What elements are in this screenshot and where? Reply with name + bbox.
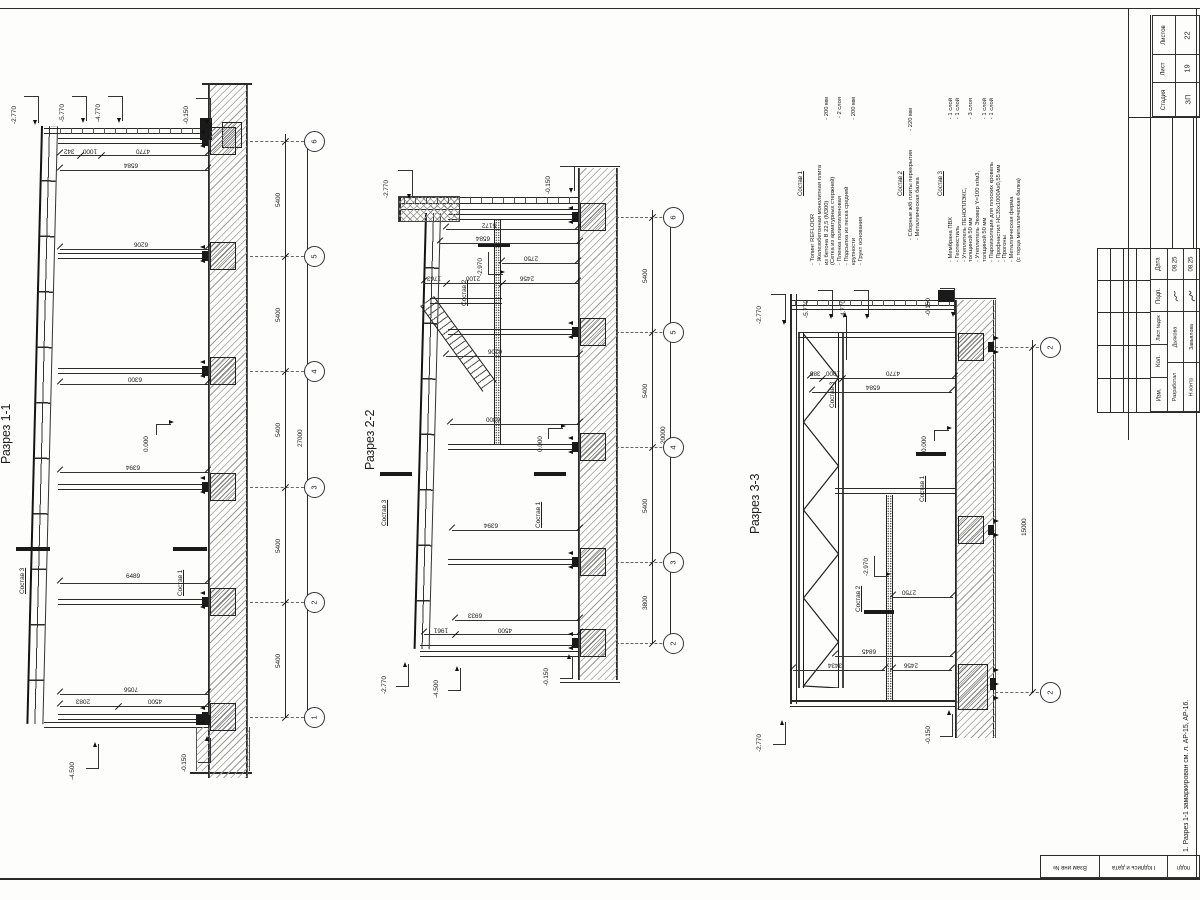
- arrow-mark: [994, 668, 1001, 672]
- stamp-stage-value: ЗП: [1183, 95, 1192, 105]
- dimension-text: 0.000: [538, 436, 545, 452]
- hatch-region: [580, 318, 606, 346]
- solid-element: [534, 472, 566, 476]
- arrow-mark: [566, 321, 573, 325]
- dimension-text: 15000: [1022, 518, 1029, 536]
- line: [1097, 248, 1200, 249]
- dimension-text: 6394: [126, 463, 140, 470]
- line: [0, 878, 1200, 880]
- composition-text: крупности: [851, 238, 858, 265]
- dimension-text: 2750: [524, 254, 538, 261]
- dimension-text: -5.770: [60, 104, 67, 122]
- composition-ref-label: Состав 2: [462, 280, 469, 306]
- elevation-leader: [771, 294, 786, 323]
- dimension-text: 20000: [661, 426, 668, 444]
- dimension-text: -0.150: [182, 754, 189, 772]
- hatch-region: [404, 197, 574, 203]
- arrow-mark: [566, 220, 573, 224]
- composition-line: - Подсыпка из песка средней: [844, 97, 851, 265]
- side-cell-podpis: Подпись и дата: [1099, 855, 1168, 878]
- elevation-leader: [86, 744, 99, 769]
- arrow-mark: [500, 270, 507, 274]
- stamp-row1-name-cell: Дьякова: [1167, 311, 1184, 363]
- composition-ref-label: Состав 3: [830, 382, 837, 408]
- arrow-mark: [198, 591, 205, 595]
- grid-bubble-label: 6: [310, 139, 319, 143]
- dimension-text: -2.970: [864, 558, 871, 576]
- line: [1150, 15, 1151, 248]
- dimension-text: 1961: [434, 626, 448, 633]
- grid-bubble-label: 1: [310, 715, 319, 719]
- dimension-text: 2750: [902, 588, 916, 595]
- arrow-mark: [994, 533, 1001, 537]
- dimension-text: 6845: [862, 647, 876, 654]
- stamp-row1-role-cell: Разработал: [1167, 362, 1184, 412]
- arrow-mark: [198, 360, 205, 364]
- stamp-row2-date-cell: 08.25: [1183, 248, 1200, 280]
- dimension-text: 3434: [828, 661, 842, 668]
- arrow-mark: [567, 652, 571, 659]
- dimension-line: [446, 229, 578, 230]
- dimension-text: 1000: [83, 147, 97, 154]
- arrow-mark: [566, 335, 573, 339]
- grid-bubble: 4: [304, 361, 325, 382]
- arrow-mark: [782, 320, 786, 327]
- composition-value: - 200 мм: [851, 97, 858, 120]
- grid-bubble: 2: [1040, 337, 1061, 358]
- line: [1040, 855, 1200, 856]
- hatch-region: [579, 168, 618, 680]
- line: [1128, 117, 1200, 118]
- stamp-rev-qty-cell: Кол.: [1150, 344, 1168, 378]
- line: [1196, 8, 1197, 878]
- dimension-text: -2.770: [384, 180, 391, 198]
- line: [835, 493, 955, 494]
- dimension-text: -4.770: [96, 104, 103, 122]
- composition-line: - Пароизоляция для плоских кровель- 1 сл…: [989, 98, 996, 262]
- dimension-text: -0.150: [926, 298, 933, 316]
- composition-line: - Металлическая балка: [915, 108, 922, 240]
- composition-value: - 2 слоя: [837, 97, 844, 118]
- stamp-sheet-label-cell: Лист: [1152, 54, 1176, 83]
- grid-bubble-label: 6: [669, 215, 678, 219]
- composition-value: - 1 слой: [989, 98, 996, 119]
- stamp-sheets-label: Листов: [1161, 25, 1167, 45]
- grid-bubble: 5: [304, 246, 325, 267]
- dimension-line: [60, 583, 208, 584]
- arrow-mark: [994, 519, 1001, 523]
- composition-line: - Пленка полиэтиленовая- 2 слоя: [837, 97, 844, 265]
- line: [58, 484, 208, 485]
- line: [58, 143, 208, 144]
- arrow-mark: [198, 374, 205, 378]
- line: [58, 373, 208, 374]
- grid-bubble: 2: [1040, 682, 1061, 703]
- arrow-mark: [407, 194, 411, 201]
- line: [420, 645, 580, 646]
- composition-value: - 1 слой: [982, 98, 989, 119]
- dimension-line: [835, 656, 953, 657]
- dimension-text: -4.770: [841, 300, 848, 318]
- composition-line: - Геотекстиль- 1 слой: [955, 98, 962, 262]
- line: [285, 134, 286, 718]
- composition-text: - Утеплитель Эковер Y=100 кг/м3,: [975, 171, 982, 262]
- arrow-mark: [569, 188, 573, 195]
- elevation-leader: [773, 722, 786, 745]
- line: [1193, 117, 1194, 248]
- arrow-mark: [566, 632, 573, 636]
- dimension-text: -4.500: [70, 762, 77, 780]
- solid-element: [380, 472, 412, 476]
- composition-text: - Геотекстиль: [955, 226, 962, 262]
- dimension-text: 5400: [643, 499, 650, 513]
- stamp-row1-name: Дьякова: [1173, 327, 1179, 348]
- arrow-mark: [994, 682, 1001, 686]
- composition-ref-label: Состав 1: [920, 476, 927, 502]
- composition-text: - Сборные ж/б плиты перекрытия: [908, 150, 915, 240]
- arrow-mark: [566, 450, 573, 454]
- hatch-region: [580, 548, 606, 576]
- dimension-text: 5400: [276, 308, 283, 322]
- dimension-line: [60, 249, 208, 250]
- stamp-rev-date-cell: Дата: [1150, 248, 1168, 280]
- arrow-mark: [780, 718, 784, 725]
- line: [798, 337, 957, 338]
- dimension-line: [810, 378, 955, 379]
- dimension-text: 0.000: [922, 436, 929, 452]
- line: [58, 258, 208, 259]
- side-cell-podpis-label: Подпись и дата: [1112, 864, 1155, 870]
- dimension-line: [60, 384, 208, 385]
- dimension-text: -0.150: [926, 726, 933, 744]
- dimension-text: 4770: [886, 369, 900, 376]
- grid-bubble-label: 4: [669, 445, 678, 449]
- solid-element: [864, 610, 894, 614]
- elevation-leader: [156, 424, 171, 435]
- hatch-region: [886, 495, 893, 702]
- line: [58, 604, 208, 605]
- line: [790, 706, 957, 707]
- dimension-line: [893, 597, 953, 598]
- grid-bubble: 5: [663, 322, 684, 343]
- stamp-row2-sig-cell: [1183, 279, 1200, 312]
- line: [58, 368, 208, 369]
- hatch-region: [210, 357, 236, 385]
- elevation-leader: [198, 738, 211, 763]
- hatch-region: [210, 588, 236, 616]
- composition-ref-label: Состав 1: [536, 502, 543, 528]
- elevation-leader: [818, 290, 833, 317]
- arrow-mark: [994, 336, 1001, 340]
- line: [58, 253, 208, 254]
- dimension-text: 6933: [468, 611, 482, 618]
- line: [448, 559, 578, 560]
- composition-value: - 1 слой: [955, 98, 962, 119]
- composition-header: Состав 3: [938, 171, 944, 196]
- arrow-mark: [33, 120, 37, 127]
- side-cell-podl-label: подп: [1177, 864, 1190, 870]
- line: [420, 656, 580, 657]
- line: [448, 219, 578, 220]
- dimension-text: 342: [64, 147, 75, 154]
- line: [58, 489, 208, 490]
- dimension-text: 3800: [643, 596, 650, 610]
- arrow-mark: [566, 206, 573, 210]
- grid-bubble: 3: [304, 477, 325, 498]
- stamp-rev-chg: Изм.: [1156, 388, 1162, 401]
- elevation-leader: [560, 656, 573, 679]
- line: [448, 444, 578, 445]
- grid-axis-line: [250, 256, 304, 257]
- elevation-leader: [940, 714, 953, 737]
- stamp-row1-date-cell: 08.25: [1167, 248, 1184, 280]
- arrow-mark: [947, 708, 951, 715]
- composition-ref-label: Состав 3: [382, 500, 389, 526]
- dimension-text: 5400: [643, 269, 650, 283]
- arrow-mark: [994, 350, 1001, 354]
- composition-text: - Металлическая ферма: [1009, 197, 1016, 263]
- line: [1128, 8, 1129, 440]
- dimension-text: 27000: [298, 429, 305, 447]
- composition-line: - Топинг REFLOOR: [810, 97, 817, 265]
- stamp-row2-name: Завьялова: [1189, 324, 1195, 350]
- composition-text: (с торца металлическая балка): [1016, 178, 1023, 262]
- dimension-text: -2.770: [757, 734, 764, 752]
- arrow-mark: [205, 734, 209, 741]
- elevation-leader: [548, 428, 563, 439]
- dimension-text: 5400: [276, 423, 283, 437]
- arrow-mark: [198, 476, 205, 480]
- dimension-line: [60, 170, 208, 171]
- hatch-region: [958, 516, 984, 544]
- composition-line: - Металлическая ферма: [1009, 98, 1016, 262]
- dimension-line: [793, 670, 885, 671]
- arrow-mark: [566, 436, 573, 440]
- composition-header: Состав 2: [898, 171, 904, 196]
- composition-ref-label: Состав 3: [20, 568, 27, 594]
- grid-bubble: 1: [304, 707, 325, 728]
- dimension-text: 5172: [482, 221, 496, 228]
- line: [44, 722, 208, 723]
- arrow-mark: [117, 118, 121, 125]
- line: [790, 700, 957, 702]
- stamp-row2-role-cell: Н.контр: [1183, 362, 1200, 412]
- stamp-rev-sign: Подп.: [1156, 288, 1162, 304]
- dimension-line: [60, 472, 208, 473]
- composition-text: - Мембрана ПВХ: [948, 217, 955, 262]
- elevation-leader: [854, 290, 869, 317]
- side-cell-vzam: Взам инв №: [1040, 855, 1100, 878]
- grid-bubble-label: 2: [310, 600, 319, 604]
- grid-bubble: 2: [304, 592, 325, 613]
- stamp-rev-date: Дата: [1156, 257, 1162, 270]
- grid-axis-line: [250, 717, 304, 718]
- sheet-note: 1. Разрез 1-1 замаркирован см. л. АР-15,…: [1183, 700, 1190, 852]
- dimension-line: [60, 155, 208, 156]
- stamp-sheets-label-cell: Листов: [1152, 15, 1176, 55]
- arrow-mark: [561, 424, 568, 428]
- line: [790, 294, 792, 704]
- arrow-mark: [198, 245, 205, 249]
- line: [1110, 248, 1111, 412]
- grid-bubble-label: 3: [310, 485, 319, 489]
- elevation-leader: [448, 668, 461, 691]
- dimension-text: 6584: [476, 234, 490, 241]
- stamp-stage-label: Стадия: [1161, 89, 1167, 109]
- line: [1032, 340, 1033, 692]
- line: [798, 332, 957, 333]
- stamp-row1-role: Разработал: [1173, 373, 1179, 401]
- dimension-text: 4770: [136, 147, 150, 154]
- dimension-text: 7056: [124, 685, 138, 692]
- hatch-region: [210, 703, 236, 731]
- arrow-mark: [403, 660, 407, 667]
- line: [44, 727, 208, 728]
- stamp-sheet-value: 19: [1183, 64, 1192, 72]
- hatch-region: [60, 128, 206, 134]
- arrow-mark: [169, 420, 176, 424]
- line: [58, 138, 208, 139]
- section-2-2: [360, 160, 700, 700]
- solid-element: [173, 547, 207, 551]
- arrow-mark: [566, 551, 573, 555]
- grid-axis-line: [250, 141, 304, 142]
- dimension-line: [60, 706, 208, 707]
- stamp-sheet-label: Лист: [1161, 62, 1167, 75]
- line: [420, 651, 580, 652]
- signature-icon: [1172, 290, 1180, 302]
- arrow-mark: [994, 696, 1001, 700]
- composition-text: - Металлическая балка: [915, 177, 922, 240]
- stamp-rev-chg-cell: Изм.: [1150, 377, 1168, 412]
- section-title: Разрез 2-2: [364, 410, 377, 470]
- line: [652, 210, 653, 644]
- arrow-mark: [205, 120, 209, 127]
- dimension-text: 2083: [76, 697, 90, 704]
- grid-axis-line: [250, 602, 304, 603]
- arrow-mark: [829, 314, 833, 321]
- stamp-sheets-value: 22: [1183, 31, 1192, 39]
- arrow-mark: [198, 259, 205, 263]
- hatch-region: [210, 127, 236, 155]
- dimension-text: 4500: [498, 626, 512, 633]
- elevation-leader: [934, 430, 949, 441]
- grid-bubble-label: 2: [669, 641, 678, 645]
- dimension-text: 2456: [520, 274, 534, 281]
- line: [1040, 855, 1041, 878]
- dimension-text: -4.500: [434, 680, 441, 698]
- dimension-text: 2456: [904, 661, 918, 668]
- elevation-leader: [940, 288, 955, 315]
- composition-text: - Топинг REFLOOR: [810, 214, 817, 265]
- arrow-mark: [455, 664, 459, 671]
- dimension-line: [455, 620, 580, 621]
- dimension-text: -0.150: [184, 106, 191, 124]
- line: [1097, 412, 1200, 413]
- dimension-text: 6489: [126, 574, 140, 581]
- grid-bubble-label: 2: [1046, 345, 1055, 349]
- dimension-text: 5400: [643, 384, 650, 398]
- solid-element: [16, 547, 50, 551]
- line: [0, 8, 1200, 9]
- stamp-row2-date: 08.25: [1189, 256, 1195, 271]
- hatch-region: [209, 85, 248, 778]
- arrow-mark: [93, 740, 97, 747]
- truss: [798, 332, 844, 688]
- arrow-mark: [198, 605, 205, 609]
- grid-bubble-label: 3: [669, 560, 678, 564]
- composition-line: - Сборные ж/б плиты перекрытия- 220 мм: [908, 108, 915, 240]
- line: [670, 210, 671, 644]
- line: [58, 719, 208, 720]
- line: [58, 599, 208, 600]
- dimension-text: -2.770: [382, 676, 389, 694]
- composition-text: толщиной 50 мм: [982, 218, 989, 262]
- composition-line: (с торца металлическая балка): [1016, 98, 1023, 262]
- line: [846, 316, 847, 360]
- composition-ref-label: Состав 1: [178, 570, 185, 596]
- composition-line: - Мембрана ПВХ- 1 слой: [948, 98, 955, 262]
- stamp-rev-docno-cell: Лист №док: [1150, 311, 1168, 345]
- dimension-line: [452, 530, 580, 531]
- dimension-text: 6206: [134, 240, 148, 247]
- dimension-text: 1000: [826, 369, 840, 376]
- line: [448, 329, 578, 330]
- dimension-text: -2.970: [478, 258, 485, 276]
- arrow-mark: [198, 490, 205, 494]
- arrow-mark: [947, 426, 954, 430]
- composition-ref-label: Состав 2: [856, 586, 863, 612]
- composition-text: - Пароизоляция для плоских кровель: [989, 162, 996, 262]
- dimension-text: 6206: [488, 347, 502, 354]
- dimension-line: [424, 634, 580, 635]
- line: [835, 488, 955, 489]
- hatch-region: [958, 664, 988, 710]
- hatch-region: [958, 333, 984, 361]
- composition-value: - 220 мм: [908, 108, 915, 131]
- hatch-region: [210, 242, 236, 270]
- stamp-row1-sig-cell: [1167, 279, 1184, 312]
- composition-header: Состав 1: [798, 171, 804, 196]
- drawing-sheet: Листов 22 Лист 19 Стадия ЗП Дата Подп. Л…: [0, 0, 1200, 900]
- composition-line: - Железобетонная монолитная плита: [817, 97, 824, 265]
- elevation-leader: [24, 96, 39, 123]
- hatch-region: [580, 433, 606, 461]
- dimension-text: -0.150: [546, 176, 553, 194]
- signature-icon: [1188, 290, 1196, 302]
- dimension-text: 385: [810, 369, 821, 376]
- arrow-mark: [566, 565, 573, 569]
- dimension-text: 6300: [128, 375, 142, 382]
- dimension-text: -5.770: [804, 300, 811, 318]
- stamp-row2-name-cell: Завьялова: [1183, 311, 1200, 363]
- line: [1097, 248, 1098, 412]
- arrow-mark: [865, 314, 869, 321]
- line: [448, 334, 578, 335]
- stamp-row2-role: Н.контр: [1189, 378, 1195, 397]
- grid-bubble-label: 5: [669, 330, 678, 334]
- line: [448, 214, 578, 215]
- arrow-mark: [81, 118, 85, 125]
- hatch-region: [210, 473, 236, 501]
- dimension-text: 6584: [124, 161, 138, 168]
- composition-line: - Грунт основания: [858, 97, 865, 265]
- arrow-mark: [886, 572, 893, 576]
- grid-bubble: 2: [663, 633, 684, 654]
- grid-bubble: 6: [304, 131, 325, 152]
- arrow-mark: [198, 720, 205, 724]
- dimension-text: 6394: [484, 521, 498, 528]
